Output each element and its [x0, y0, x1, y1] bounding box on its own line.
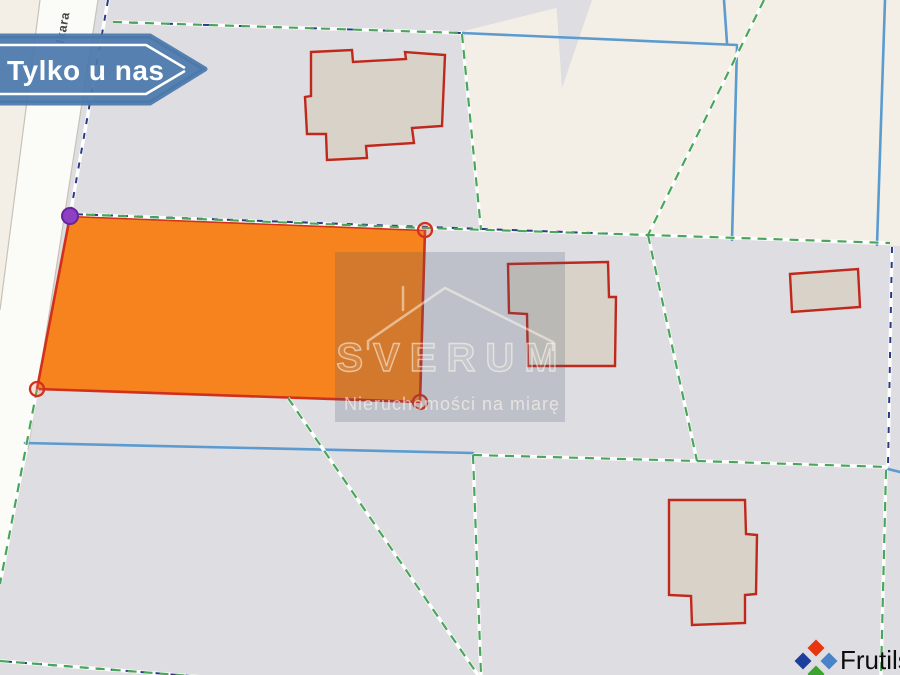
- promo-ribbon-label: Tylko u nas: [7, 55, 164, 86]
- vertex-marker-bottom-left[interactable]: [30, 382, 44, 396]
- watermark-tagline: Nieruchomości na miarę: [344, 394, 560, 414]
- watermark-brand: SVERUM: [336, 336, 567, 380]
- vertex-marker-top-right[interactable]: [418, 223, 432, 237]
- brand-logo-label: Frutils: [840, 645, 900, 675]
- map-canvas[interactable]: SVERUM Nieruchomości na miarę Ikara Tylk…: [0, 0, 900, 675]
- watermark: SVERUM Nieruchomości na miarę: [335, 252, 568, 422]
- building-outline-small: [790, 269, 860, 312]
- listing-map-screenshot: SVERUM Nieruchomości na miarę Ikara Tylk…: [0, 0, 900, 675]
- vertex-marker-purple[interactable]: [62, 208, 78, 224]
